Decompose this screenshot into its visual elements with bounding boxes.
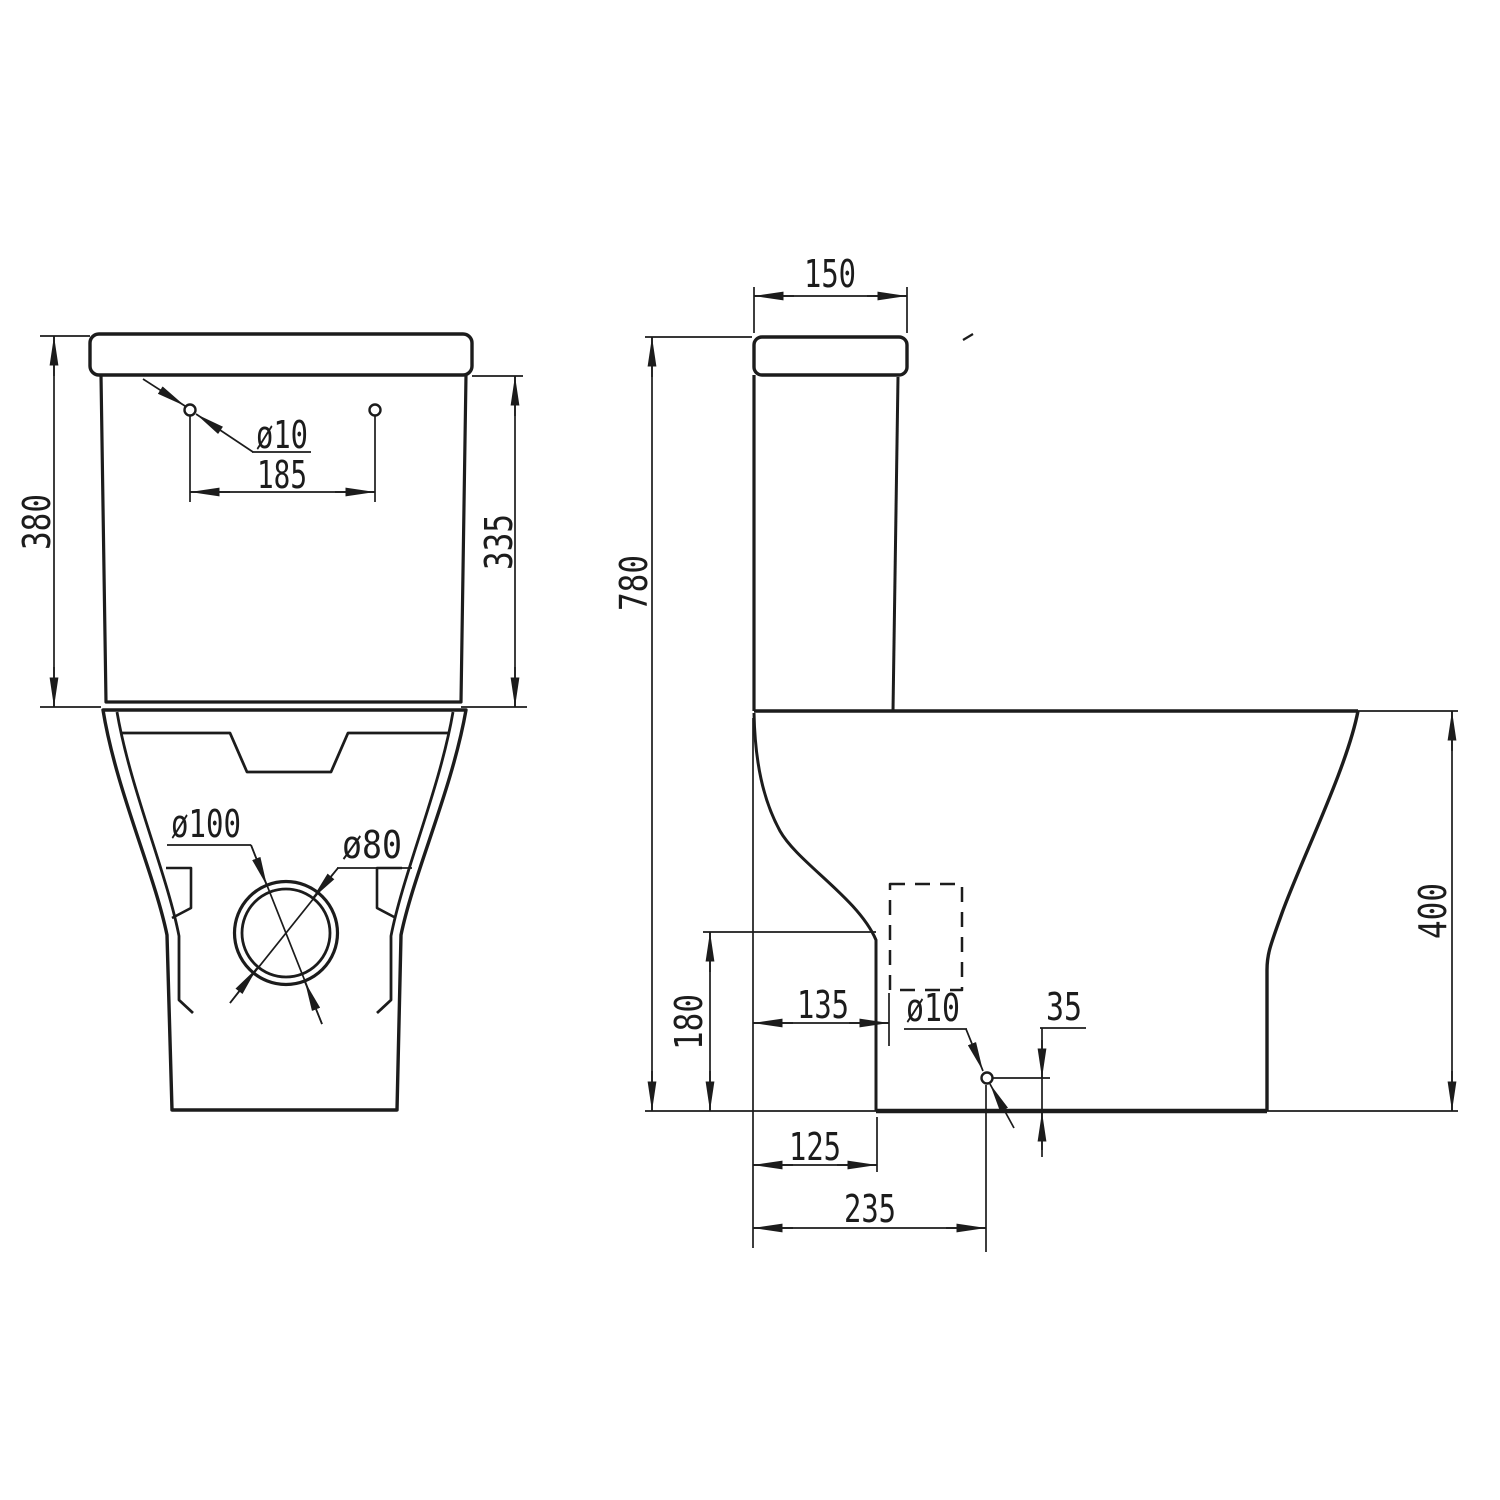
overall-height-side-label: 780 [612,555,656,611]
hole-center-height-label: 35 [1046,985,1082,1029]
hole-diameter-side-label: ø10 [906,986,960,1030]
hole-diameter-front-label: ø10 [256,413,308,457]
outlet-setback-label: 135 [797,983,849,1027]
outlet-inner-diameter-label: ø80 [342,823,402,867]
tank-height-label: 335 [477,514,521,570]
pan-height-label: 400 [1411,883,1455,939]
overall-height-front-label: 380 [15,494,59,550]
rear-face-height-label: 180 [667,994,711,1050]
page-background [0,0,1500,1500]
hole-spacing-label: 185 [257,453,307,497]
outlet-outer-diameter-label: ø100 [171,802,241,846]
hole-setback-label: 235 [844,1187,896,1231]
pan-rear-setback-label: 125 [789,1125,841,1169]
toilet-dimension-drawing: ø100 ø80 ø10 185 [0,0,1500,1500]
technical-drawing-page: ø100 ø80 ø10 185 [0,0,1500,1500]
cistern-depth-label: 150 [804,252,856,296]
